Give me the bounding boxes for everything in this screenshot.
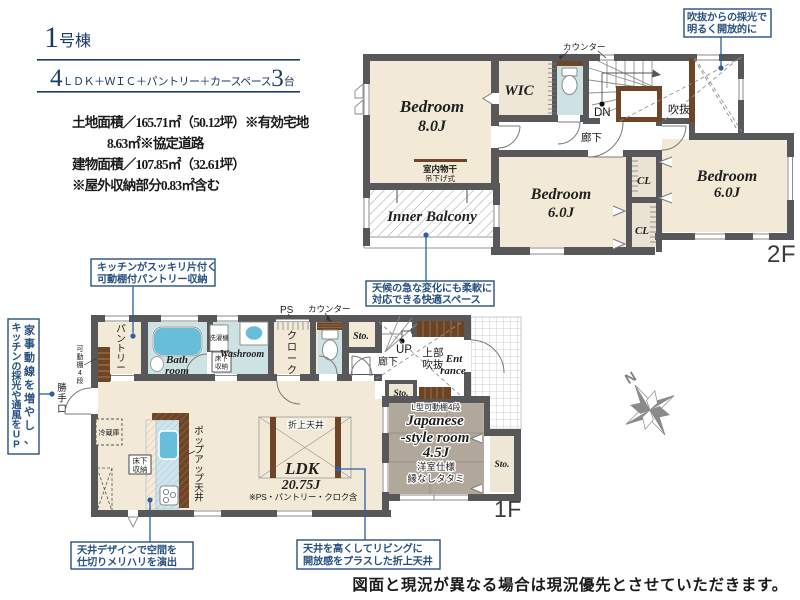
svg-text:ク: ク [287, 330, 297, 342]
svg-text:床下: 床下 [133, 456, 148, 466]
svg-text:土地面積／165.71㎡（50.12坪）※有効宅地: 土地面積／165.71㎡（50.12坪）※有効宅地 [72, 114, 310, 130]
svg-text:勝: 勝 [57, 382, 67, 394]
svg-text:し: し [24, 419, 35, 432]
svg-text:収納: 収納 [133, 464, 148, 474]
svg-text:ー: ー [116, 363, 126, 374]
svg-text:※屋外収納部分0.83㎡含む: ※屋外収納部分0.83㎡含む [72, 177, 220, 193]
svg-text:room: room [165, 365, 189, 377]
svg-text:Ent: Ent [445, 353, 463, 365]
svg-text:DN: DN [594, 107, 611, 119]
svg-text:天候の急な変化にも柔軟に: 天候の急な変化にも柔軟に [372, 282, 492, 295]
svg-text:P: P [13, 439, 20, 450]
svg-text:PS: PS [280, 305, 294, 316]
svg-text:Bedroom: Bedroom [399, 97, 464, 116]
svg-text:開放感をプラスした折上天井: 開放感をプラスした折上天井 [303, 555, 433, 568]
svg-text:吊下げ式: 吊下げ式 [425, 173, 455, 183]
svg-text:や: や [24, 406, 35, 419]
svg-text:Sto.: Sto. [353, 331, 369, 342]
svg-text:収納: 収納 [215, 362, 228, 371]
svg-text:4: 4 [78, 370, 82, 377]
svg-text:LDK: LDK [284, 459, 321, 478]
svg-text:建物面積／107.85㎡（32.61坪）: 建物面積／107.85㎡（32.61坪） [71, 156, 245, 172]
svg-text:吹抜からの採光で: 吹抜からの採光で [687, 11, 767, 24]
svg-text:を: を [24, 378, 35, 391]
svg-text:ロ: ロ [287, 343, 297, 354]
svg-text:1F: 1F [494, 496, 522, 522]
svg-text:事: 事 [24, 337, 35, 351]
svg-text:L型可動棚4段: L型可動棚4段 [412, 402, 461, 412]
svg-text:8.0J: 8.0J [418, 118, 447, 135]
svg-text:20.75J: 20.75J [281, 478, 322, 493]
svg-text:Inner Balcony: Inner Balcony [386, 209, 477, 225]
svg-text:2F: 2F [767, 241, 796, 268]
svg-text:Bedroom: Bedroom [696, 168, 757, 185]
svg-text:UP: UP [396, 344, 412, 356]
svg-text:動: 動 [24, 350, 35, 364]
svg-text:CL: CL [637, 175, 651, 187]
svg-text:8.63㎡※協定道路: 8.63㎡※協定道路 [107, 135, 205, 151]
svg-text:カウンター: カウンター [308, 304, 351, 314]
svg-text:6.0J: 6.0J [714, 185, 741, 201]
svg-text:動: 動 [77, 352, 84, 361]
svg-text:Bedroom: Bedroom [530, 186, 591, 203]
svg-text:、: 、 [24, 434, 35, 446]
svg-text:縁なしタタミ: 縁なしタタミ [407, 473, 464, 485]
svg-text:Japanese: Japanese [405, 413, 464, 429]
svg-text:ク: ク [287, 365, 297, 377]
svg-text:Sto.: Sto. [494, 460, 509, 470]
svg-text:洋室仕様: 洋室仕様 [417, 461, 456, 473]
svg-text:ー: ー [287, 354, 297, 365]
svg-text:WIC: WIC [504, 83, 534, 99]
svg-text:手: 手 [57, 393, 67, 405]
svg-text:廊下: 廊下 [581, 131, 602, 144]
svg-text:天井を高くしてリビングに: 天井を高くしてリビングに [303, 542, 423, 555]
svg-text:-style room: -style room [401, 430, 470, 446]
svg-text:6.0J: 6.0J [548, 205, 575, 221]
svg-text:室内物干: 室内物干 [423, 164, 458, 174]
svg-text:天井デザインで空間を: 天井デザインで空間を [77, 544, 177, 557]
svg-text:明るく開放的に: 明るく開放的に [687, 23, 757, 36]
svg-text:対応できる快適スペース: 対応できる快適スペース [371, 293, 480, 306]
svg-text:CL: CL [635, 225, 649, 237]
svg-text:洗濯機: 洗濯機 [209, 333, 229, 342]
svg-text:増: 増 [24, 391, 35, 405]
svg-text:※PS・パントリー・クロク含: ※PS・パントリー・クロク含 [249, 492, 358, 502]
svg-text:棚: 棚 [77, 360, 84, 369]
svg-text:仕切りメリハリを演出: 仕切りメリハリを演出 [76, 556, 177, 569]
svg-text:Washroom: Washroom [220, 349, 264, 360]
svg-text:上部: 上部 [423, 346, 444, 359]
svg-text:可動棚付パントリー収納: 可動棚付パントリー収納 [97, 273, 207, 286]
svg-text:Sto.: Sto. [393, 389, 408, 399]
svg-text:冷蔵庫: 冷蔵庫 [99, 428, 120, 437]
svg-text:段: 段 [77, 376, 84, 385]
svg-text:井: 井 [194, 492, 204, 504]
svg-text:4.5J: 4.5J [422, 445, 450, 461]
svg-text:図面と現況が異なる場合は現況優先とさせていただきます。: 図面と現況が異なる場合は現況優先とさせていただきます。 [352, 575, 788, 594]
svg-text:線: 線 [24, 364, 35, 378]
svg-text:折上天井: 折上天井 [288, 419, 324, 430]
svg-text:カウンター: カウンター [563, 42, 606, 52]
svg-text:キッチンがスッキリ片付く: キッチンがスッキリ片付く [97, 261, 217, 274]
svg-text:家: 家 [24, 323, 36, 337]
svg-text:吹抜: 吹抜 [668, 102, 690, 116]
svg-text:可: 可 [77, 345, 84, 353]
svg-text:rance: rance [440, 365, 466, 377]
